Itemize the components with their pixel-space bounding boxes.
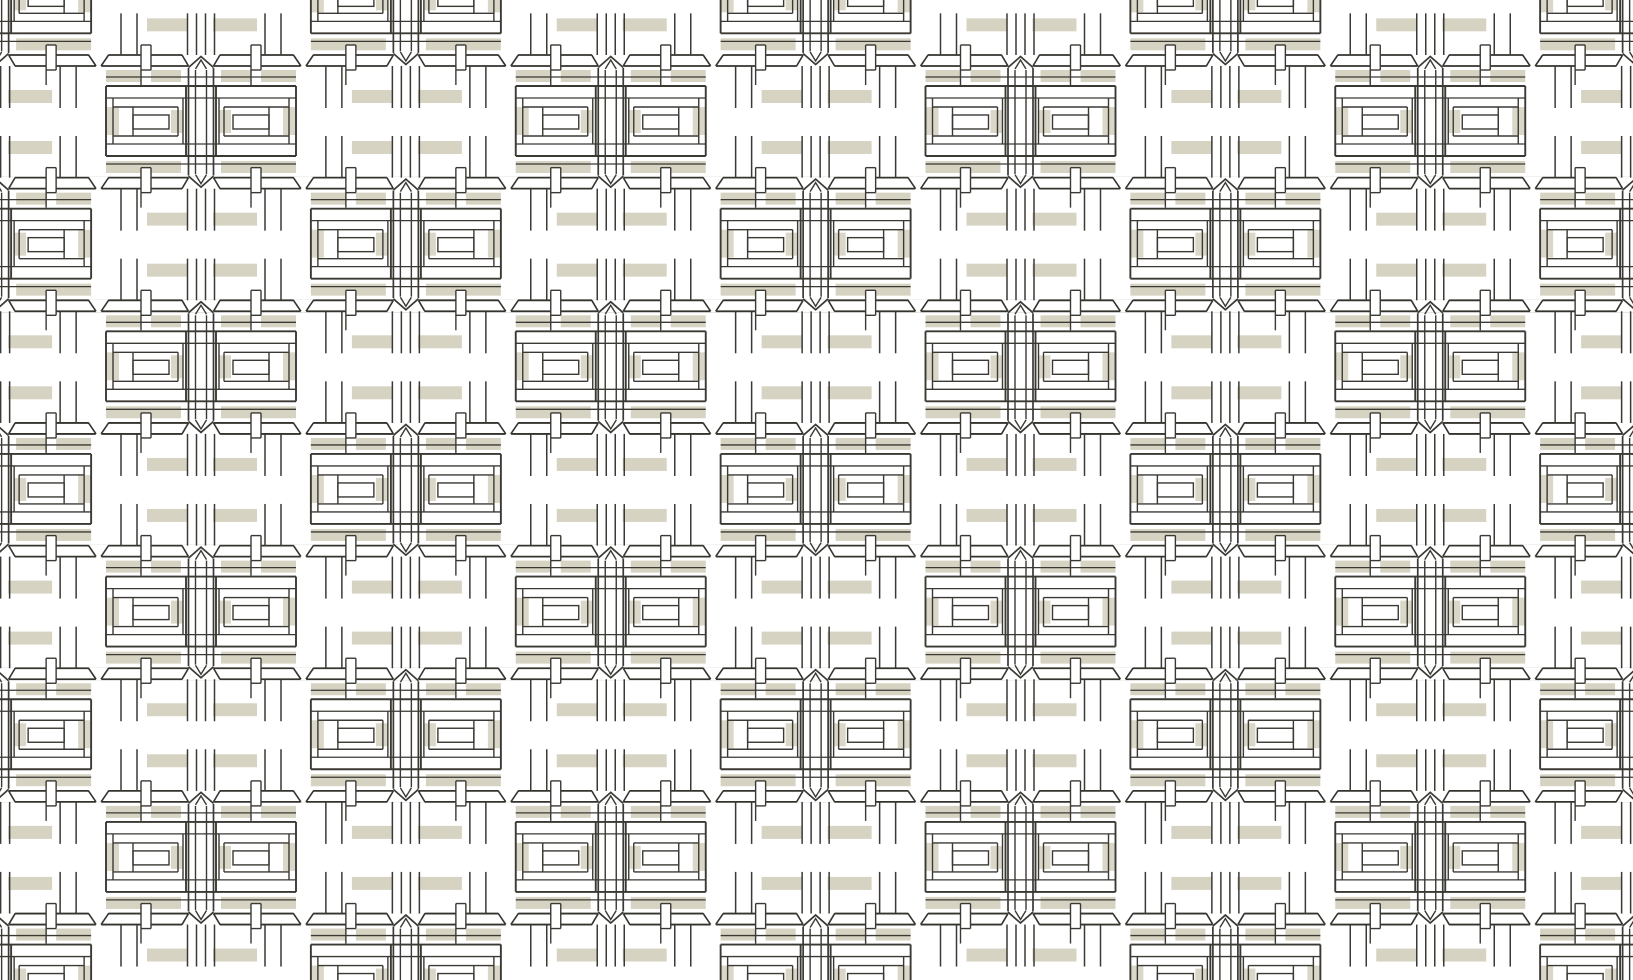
- background-layer: [0, 0, 1633, 980]
- pattern-stage: [0, 0, 1633, 980]
- pattern-svg: [0, 0, 1633, 980]
